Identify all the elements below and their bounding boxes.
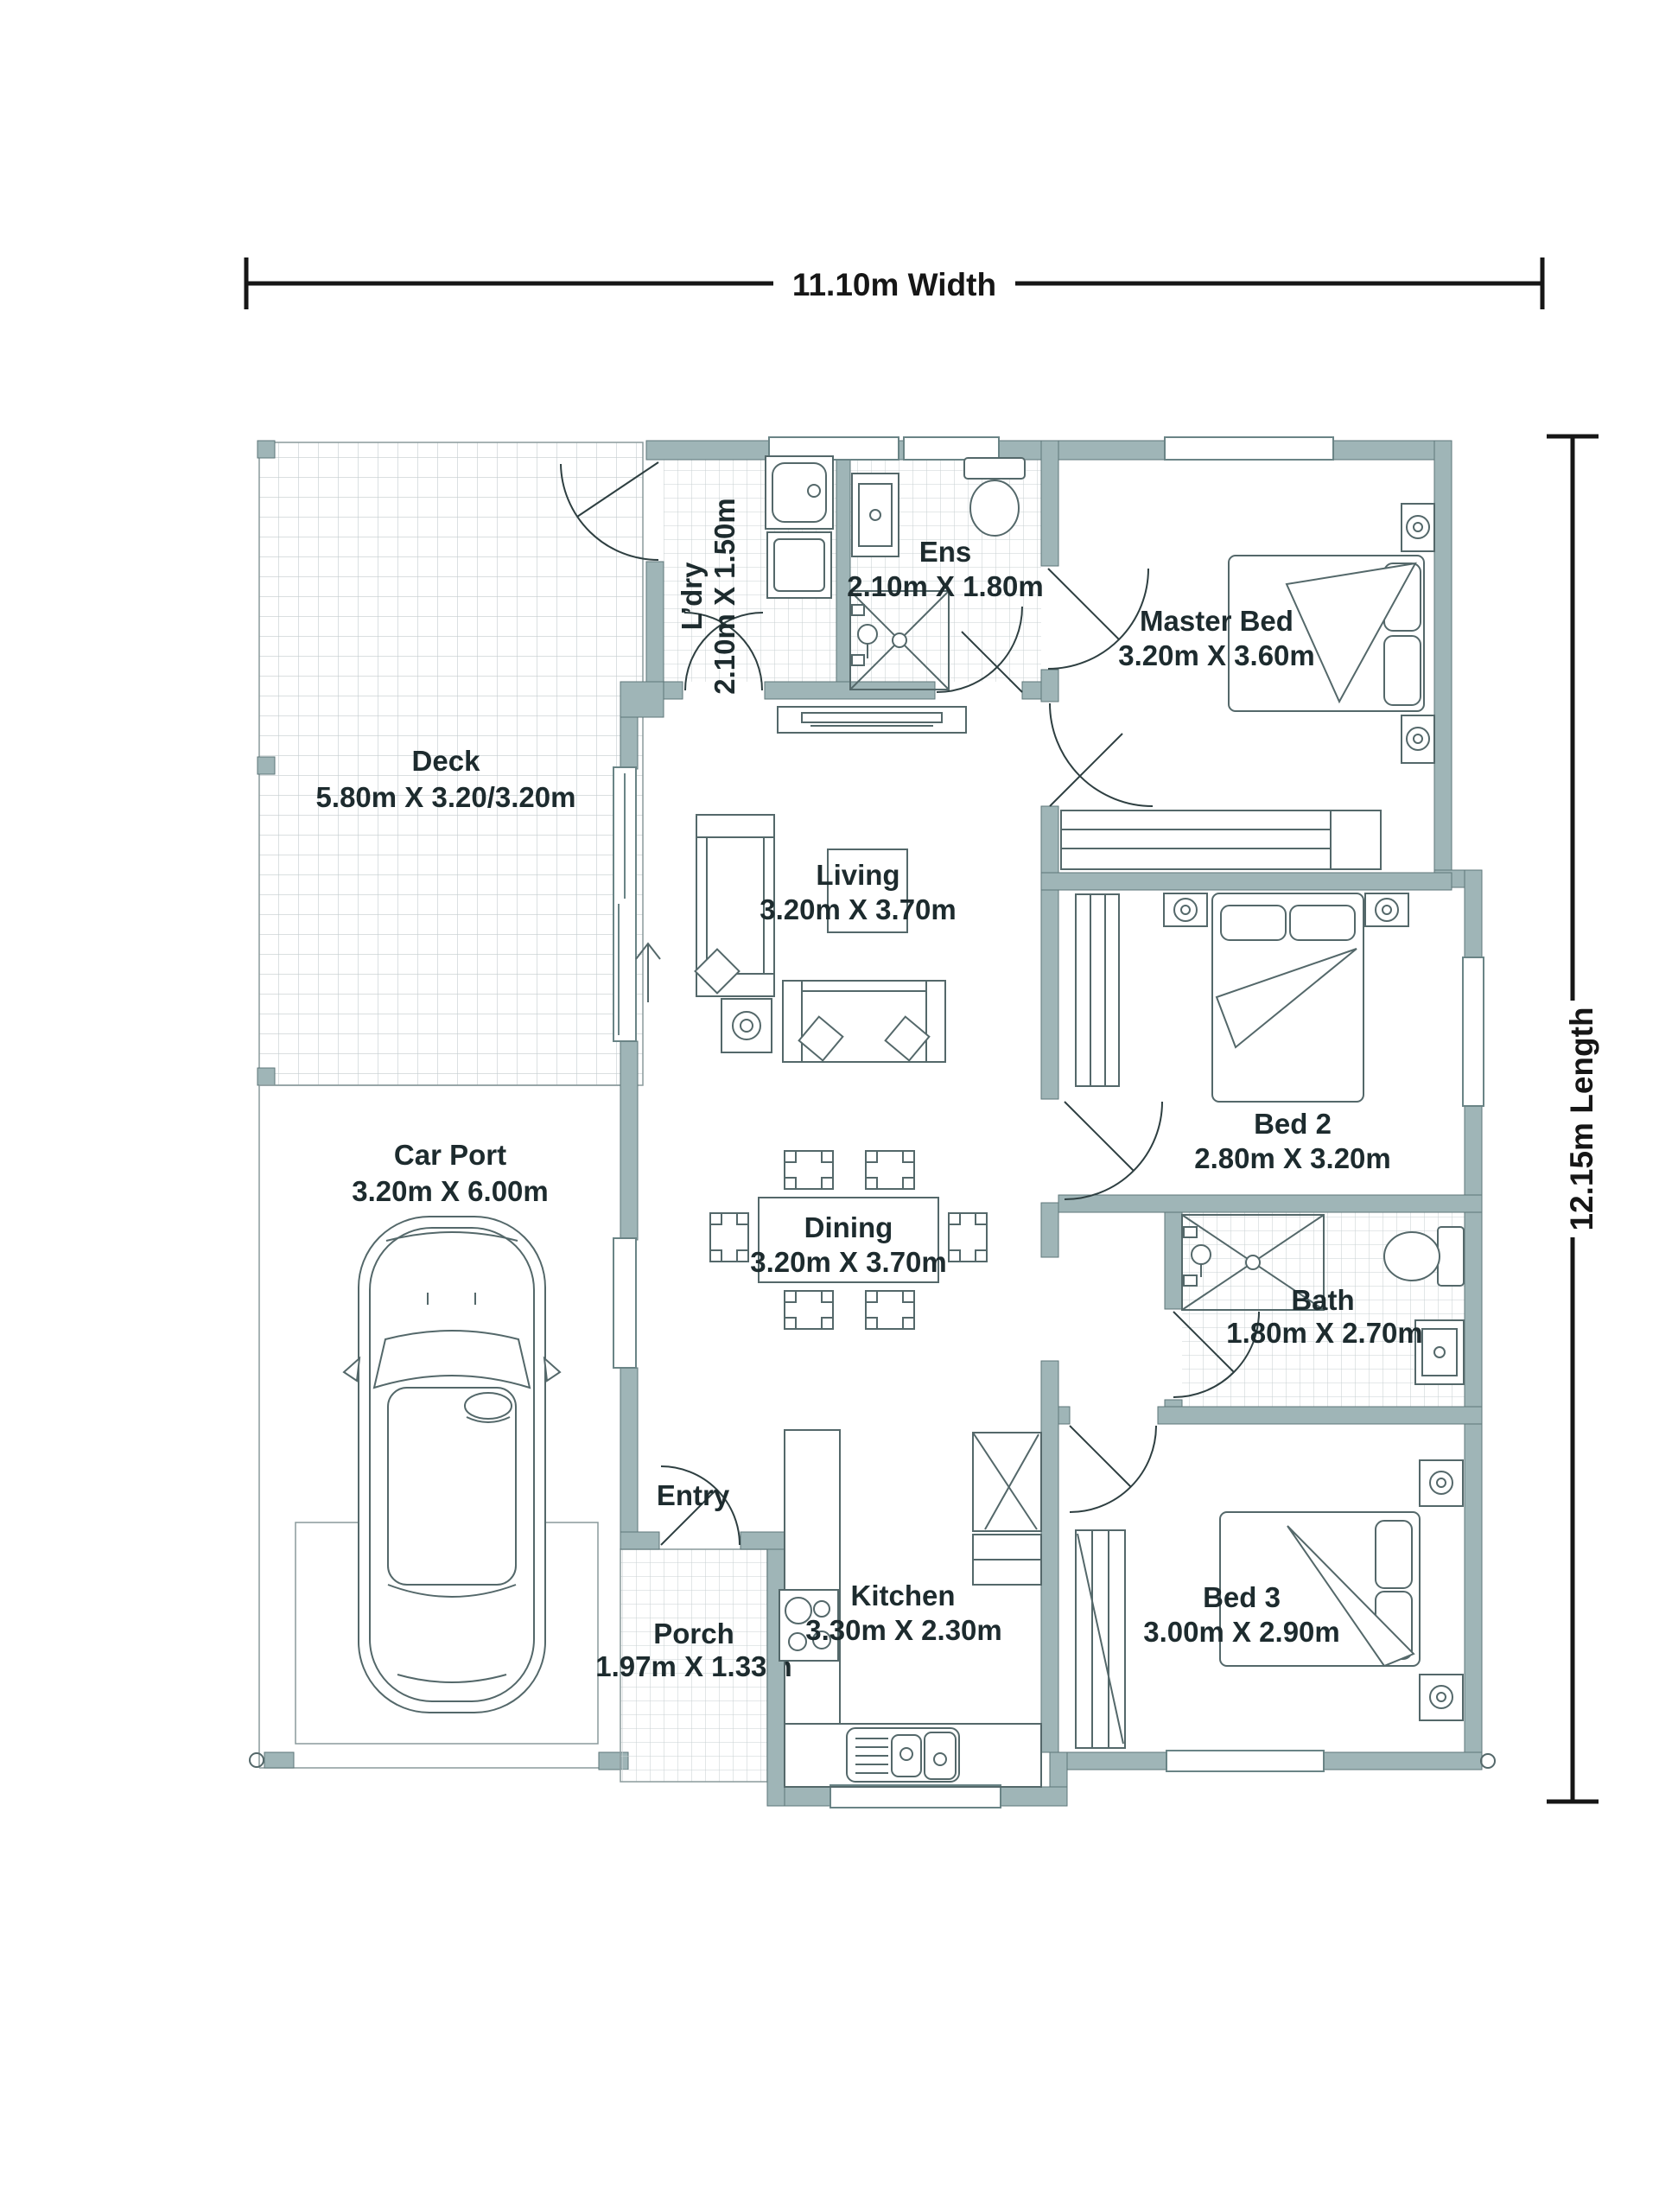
car-icon bbox=[344, 1217, 560, 1713]
side-table-icon bbox=[721, 999, 772, 1052]
pantry-icon bbox=[973, 1535, 1041, 1585]
master-bed-label: Master Bed bbox=[1140, 605, 1294, 637]
porch-dims: 1.97m X 1.33m bbox=[595, 1650, 792, 1682]
living-label: Living bbox=[816, 859, 899, 891]
nightstand-icon bbox=[1420, 1460, 1463, 1506]
width-dimension: 11.10m Width bbox=[246, 257, 1542, 309]
bed3-room: Bed 3 3.00m X 2.90m bbox=[1076, 1460, 1463, 1748]
deck-dims: 5.80m X 3.20/3.20m bbox=[316, 781, 576, 813]
kitchen-label: Kitchen bbox=[850, 1580, 955, 1611]
bed-icon bbox=[1212, 893, 1363, 1102]
dining-dims: 3.20m X 3.70m bbox=[750, 1246, 947, 1278]
living-dims: 3.20m X 3.70m bbox=[760, 893, 957, 925]
master-bed-door bbox=[1050, 703, 1153, 806]
kitchen-counter bbox=[785, 1430, 840, 1724]
master-bed-room: Master Bed 3.20m X 3.60m bbox=[1061, 504, 1434, 869]
deck-post bbox=[257, 441, 275, 458]
dining-room: Dining 3.20m X 3.70m bbox=[710, 1151, 987, 1329]
bed2-label: Bed 2 bbox=[1254, 1108, 1332, 1140]
robe-icon bbox=[1076, 894, 1119, 1086]
laundry-dims: 2.10m X 1.50m bbox=[709, 498, 741, 695]
dining-chair-icon bbox=[785, 1291, 833, 1329]
ensuite-dims: 2.10m X 1.80m bbox=[847, 570, 1044, 602]
washing-machine-icon bbox=[767, 532, 831, 598]
bed2-door bbox=[1065, 1102, 1162, 1199]
deck-post bbox=[257, 757, 275, 774]
bed3-door bbox=[1070, 1426, 1156, 1512]
bed3-label: Bed 3 bbox=[1203, 1581, 1281, 1613]
floor-plan-page: 11.10m Width 12.15m Length Deck 5.80m X … bbox=[0, 0, 1659, 2212]
car-port-area: Car Port 3.20m X 6.00m bbox=[250, 1085, 628, 1770]
corner-post-marker bbox=[1481, 1754, 1495, 1768]
ensuite-label: Ens bbox=[919, 536, 972, 568]
nightstand-icon bbox=[1402, 504, 1434, 551]
dining-chair-icon bbox=[949, 1213, 987, 1262]
toilet-icon bbox=[1384, 1227, 1464, 1286]
bed2-room: Bed 2 2.80m X 3.20m bbox=[1076, 893, 1408, 1174]
bed2-dims: 2.80m X 3.20m bbox=[1194, 1142, 1391, 1174]
deck-label: Deck bbox=[412, 745, 481, 777]
dining-chair-icon bbox=[710, 1213, 748, 1262]
kitchen-dims: 3.30m X 2.30m bbox=[805, 1614, 1002, 1646]
dining-chair-icon bbox=[785, 1151, 833, 1189]
length-dimension: 12.15m Length bbox=[1547, 436, 1599, 1802]
dining-chair-icon bbox=[866, 1291, 914, 1329]
floor-plan-drawing: 11.10m Width 12.15m Length Deck 5.80m X … bbox=[0, 0, 1659, 2212]
sliding-door-to-deck bbox=[613, 767, 636, 1041]
living-room: Living 3.20m X 3.70m bbox=[636, 707, 966, 1062]
dining-chair-icon bbox=[866, 1151, 914, 1189]
car-port-post bbox=[264, 1752, 294, 1768]
bath-label: Bath bbox=[1291, 1284, 1354, 1316]
wardrobe-icon bbox=[1076, 1530, 1125, 1748]
bed3-dims: 3.00m X 2.90m bbox=[1143, 1616, 1340, 1648]
kitchen-room: Kitchen 3.30m X 2.30m bbox=[779, 1430, 1041, 1787]
bath-dims: 1.80m X 2.70m bbox=[1226, 1317, 1423, 1349]
laundry-tub-icon bbox=[766, 456, 833, 529]
nightstand-icon bbox=[1402, 715, 1434, 763]
corner-post-marker bbox=[250, 1753, 264, 1767]
car-port-label: Car Port bbox=[394, 1139, 506, 1171]
width-dimension-label: 11.10m Width bbox=[792, 267, 996, 302]
vanity-icon bbox=[852, 474, 899, 556]
master-bed-dims: 3.20m X 3.60m bbox=[1118, 639, 1315, 671]
dining-label: Dining bbox=[804, 1211, 893, 1243]
deck-post bbox=[257, 1068, 275, 1085]
deck-area: Deck 5.80m X 3.20/3.20m bbox=[257, 441, 643, 1085]
built-in-robe bbox=[1061, 810, 1381, 869]
sink-icon bbox=[847, 1728, 959, 1782]
nightstand-icon bbox=[1420, 1675, 1463, 1720]
porch-label: Porch bbox=[653, 1618, 734, 1649]
entry-label: Entry bbox=[657, 1479, 730, 1511]
fridge-icon bbox=[973, 1433, 1041, 1531]
nightstand-icon bbox=[1365, 893, 1408, 926]
sofa-icon bbox=[783, 981, 945, 1062]
car-port-dims: 3.20m X 6.00m bbox=[352, 1175, 549, 1207]
laundry-label: L’dry bbox=[676, 562, 708, 631]
porch-area: Porch 1.97m X 1.33m bbox=[595, 1549, 792, 1782]
nightstand-icon bbox=[1164, 893, 1207, 926]
length-dimension-label: 12.15m Length bbox=[1564, 1007, 1599, 1230]
tv-unit-icon bbox=[778, 707, 966, 733]
